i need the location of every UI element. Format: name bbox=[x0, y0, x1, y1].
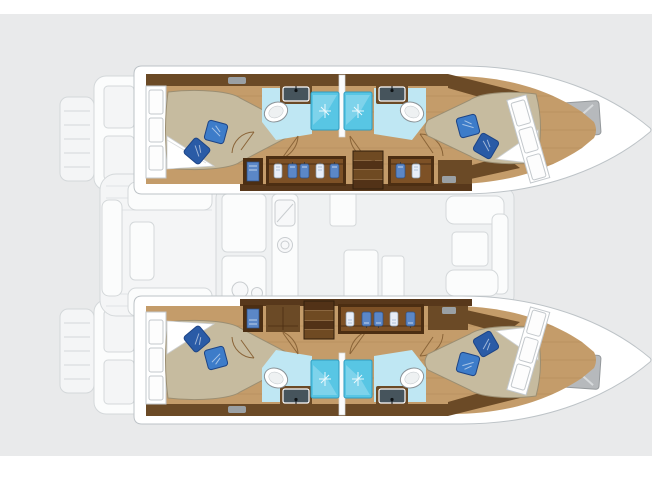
sink bbox=[376, 386, 408, 406]
galley-counter-aft bbox=[222, 194, 266, 252]
pillow bbox=[204, 346, 228, 370]
floorplan-svg bbox=[0, 0, 652, 489]
saloon bbox=[216, 188, 514, 306]
inboard-window bbox=[442, 307, 456, 314]
port-hull bbox=[134, 66, 651, 194]
inboard-window bbox=[442, 176, 456, 183]
wardrobe bbox=[266, 156, 346, 186]
hanging-clothes bbox=[396, 162, 405, 178]
cabinet bbox=[266, 305, 300, 332]
hanging-clothes bbox=[412, 162, 420, 178]
forward-seating-fwd bbox=[446, 270, 498, 296]
shower-stall bbox=[344, 360, 372, 398]
shower-stall bbox=[311, 360, 339, 398]
hull-window bbox=[149, 320, 163, 344]
wardrobe bbox=[338, 304, 424, 334]
hanging-clothes bbox=[316, 162, 324, 178]
galley-burner bbox=[278, 238, 293, 253]
hull-window bbox=[149, 376, 163, 400]
hanging-clothes bbox=[362, 312, 371, 328]
forward-table bbox=[452, 232, 488, 266]
hanging-clothes bbox=[274, 162, 282, 178]
hanging-clothes bbox=[346, 312, 354, 328]
hanging-clothes bbox=[390, 312, 398, 328]
locker bbox=[243, 158, 263, 185]
hatch-vent bbox=[228, 77, 246, 84]
shower-stall bbox=[344, 92, 372, 130]
hull-window bbox=[149, 90, 163, 114]
hull-window bbox=[149, 348, 163, 372]
pillow bbox=[456, 352, 480, 376]
sink bbox=[280, 84, 312, 104]
aft-cockpit bbox=[100, 174, 218, 316]
shower-stall bbox=[311, 92, 339, 130]
locker bbox=[243, 305, 263, 332]
saloon-island bbox=[330, 192, 356, 226]
saloon-table bbox=[344, 250, 378, 302]
sink bbox=[376, 84, 408, 104]
cockpit-table bbox=[130, 222, 154, 280]
hanging-clothes bbox=[406, 312, 415, 328]
hanging-clothes bbox=[300, 162, 309, 178]
hull-window bbox=[149, 146, 163, 170]
hanging-clothes bbox=[288, 162, 297, 178]
sink bbox=[280, 386, 312, 406]
wardrobe bbox=[388, 156, 434, 186]
cockpit-side-bench bbox=[102, 200, 122, 296]
hanging-clothes bbox=[374, 312, 383, 328]
companionway-stairs bbox=[353, 151, 383, 189]
floorplan-image bbox=[0, 0, 652, 489]
hanging-clothes bbox=[330, 162, 339, 178]
stern-swim-platform-port bbox=[60, 97, 94, 181]
hull-window bbox=[149, 118, 163, 142]
hatch-vent bbox=[228, 406, 246, 413]
nav-seat bbox=[382, 256, 404, 300]
stern-swim-platform-starboard bbox=[60, 309, 94, 393]
companionway-stairs bbox=[304, 301, 334, 339]
starboard-hull bbox=[134, 296, 651, 424]
